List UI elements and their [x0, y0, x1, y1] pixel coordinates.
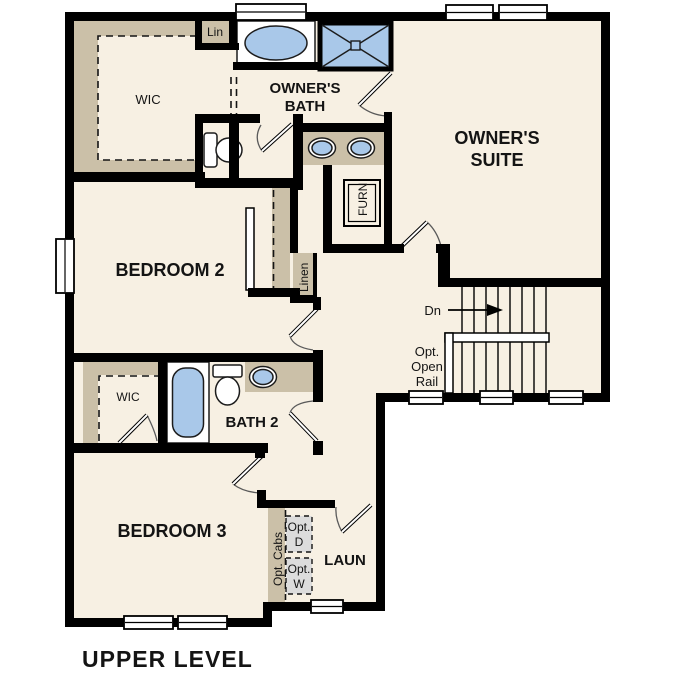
- floor-plan-canvas: WIC Lin OWNER'S BATH OWNER'S SUITE BEDRO…: [0, 0, 687, 687]
- label-linen: Linen: [297, 263, 311, 292]
- wic-shelf-band-bottom: [74, 160, 195, 174]
- label-owners-bath-1: OWNER'S: [269, 80, 340, 97]
- window-bedroom3-1: [124, 616, 173, 629]
- window-stair-1: [409, 391, 443, 404]
- label-laundry: LAUN: [324, 552, 366, 569]
- wic-shelf-band-top: [74, 21, 202, 36]
- label-bath2: BATH 2: [225, 414, 278, 431]
- toilet-icon-bath2: [213, 365, 242, 405]
- stair-rail-horizontal: [445, 333, 549, 342]
- tub2-icon: [167, 362, 209, 443]
- label-bedroom3: BEDROOM 3: [117, 521, 226, 541]
- label-bedroom2: BEDROOM 2: [115, 260, 224, 280]
- label-opt-cabs: Opt. Cabs: [271, 532, 285, 586]
- label-opt-dryer-1: Opt.: [288, 520, 311, 534]
- floorplan-page: WIC Lin OWNER'S BATH OWNER'S SUITE BEDRO…: [0, 0, 687, 687]
- label-lin: Lin: [207, 25, 223, 39]
- label-opt-washer-1: Opt.: [288, 562, 311, 576]
- stair-rail-vertical: [445, 333, 453, 393]
- label-stairs-down: Dn: [424, 303, 441, 318]
- window-laundry: [311, 600, 343, 613]
- bedroom2-closet-slider: [246, 208, 254, 290]
- label-opt-rail-3: Rail: [416, 374, 439, 389]
- window-stair-3: [549, 391, 583, 404]
- window-owners-bath: [236, 4, 306, 20]
- window-bedroom3-2: [178, 616, 227, 629]
- label-owners-suite-2: SUITE: [470, 150, 523, 170]
- wic2-shelf-band-left: [83, 362, 98, 443]
- label-opt-dryer-2: D: [295, 535, 304, 549]
- label-wic-hall: WIC: [116, 390, 140, 404]
- sink-icon-bath2: [250, 367, 277, 388]
- label-opt-rail-1: Opt.: [415, 344, 440, 359]
- label-opt-washer-2: W: [293, 577, 305, 591]
- label-owners-bath-2: BATH: [285, 98, 326, 115]
- page-title: UPPER LEVEL: [82, 646, 253, 672]
- window-suite-1: [446, 5, 493, 20]
- window-bedroom2: [56, 239, 74, 293]
- tub-icon: [237, 21, 315, 66]
- label-owners-suite-1: OWNER'S: [454, 128, 539, 148]
- label-wic-owner: WIC: [135, 92, 160, 107]
- wic-shelf-band-left: [74, 21, 98, 160]
- bedroom2-closet-shelf: [272, 188, 290, 292]
- label-opt-rail-2: Open: [411, 359, 443, 374]
- window-stair-2: [480, 391, 513, 404]
- label-furnace: FURN: [356, 183, 370, 216]
- shower-icon: [320, 23, 391, 69]
- window-suite-2: [499, 5, 547, 20]
